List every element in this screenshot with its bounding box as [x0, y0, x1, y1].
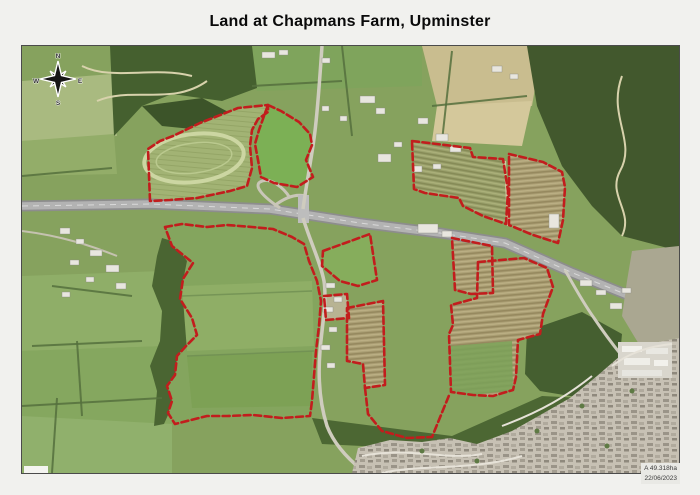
map-annotation: A 49.318ha 22/06/2023	[641, 463, 680, 484]
compass-south-label: S	[56, 100, 61, 107]
map-frame: N S W E A 49.318ha 22/06/2023	[21, 45, 680, 474]
compass-west-label: W	[33, 78, 40, 85]
compass-east-label: E	[78, 78, 83, 85]
page-title: Land at Chapmans Farm, Upminster	[0, 13, 700, 31]
compass-north-label: N	[56, 53, 61, 60]
map-edge-artifact	[24, 466, 48, 473]
map-date-label: 22/06/2023	[644, 474, 677, 483]
site-area-label: A 49.318ha	[644, 464, 677, 473]
aerial-map: N S W E	[22, 46, 679, 473]
